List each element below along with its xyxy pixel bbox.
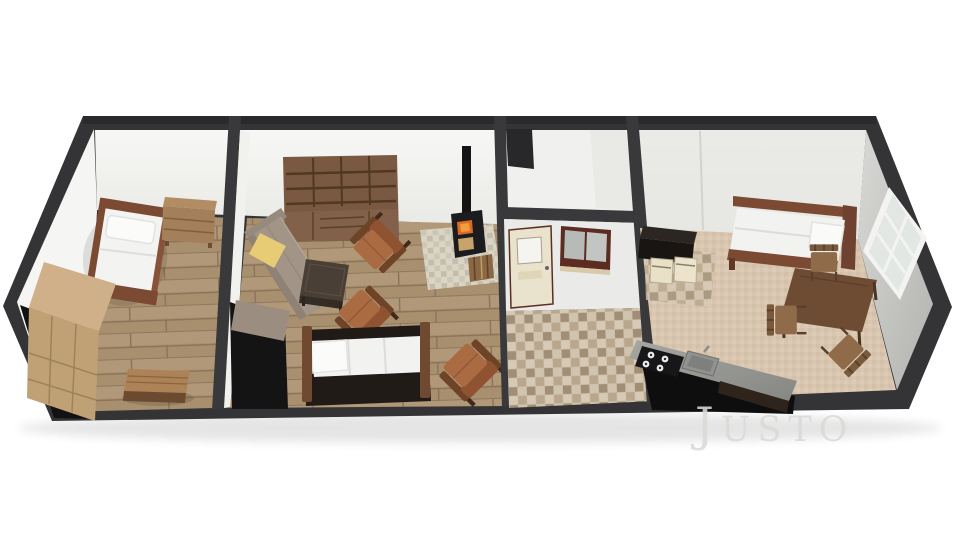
- entry-door: [509, 226, 553, 308]
- interior-window: [560, 226, 611, 275]
- bench-table: [122, 369, 194, 406]
- firewood-basket: [468, 254, 494, 282]
- floorplan-render: JUSTO: [0, 0, 960, 540]
- stove-chimney: [462, 146, 471, 218]
- mini-appliance-1: [650, 258, 673, 284]
- mini-appliance-2: [674, 257, 697, 283]
- vestibule-dark-unit: [506, 129, 534, 169]
- dresser: [162, 197, 217, 248]
- door-handle-icon: [545, 266, 549, 270]
- daybed: [302, 322, 431, 406]
- outer-wall-top-edge: [83, 116, 876, 124]
- floorplan-page: JUSTO: [0, 0, 960, 540]
